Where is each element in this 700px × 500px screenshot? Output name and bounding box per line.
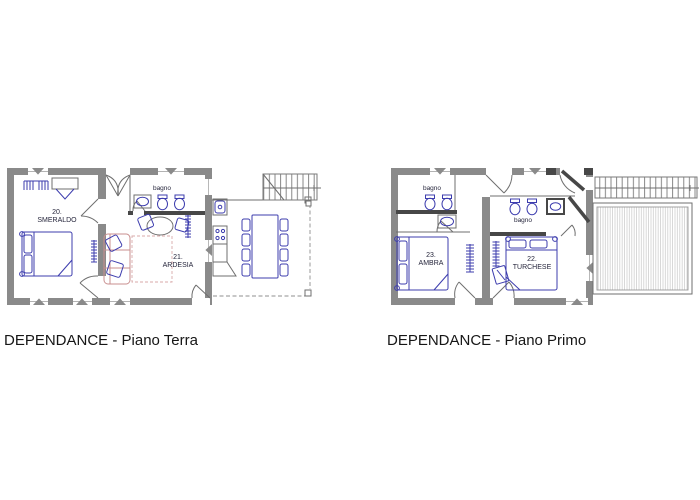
stove-icon [213,226,227,244]
kitchen-unit [213,199,236,276]
sofa-icon [104,234,130,284]
floorplan-drawing: 20. SMERALDO 21. ARDESIA bagno [0,0,700,500]
bathroom [134,195,185,210]
radiator-icon [24,181,48,190]
toilet-icon [425,195,435,210]
room-number: 23. [426,252,436,259]
dining-table-icon [252,215,278,278]
sink-icon [438,215,456,228]
counter-icon [213,244,236,276]
chair-icon [137,214,154,231]
room-name: SMERALDO [37,217,77,224]
terrace-hatch [597,207,688,290]
sofa-bed-outline-icon [132,236,172,282]
shower-icon [547,199,564,214]
toilet-icon [510,199,520,215]
radiator-icon [466,244,474,272]
floor-plan-piano-primo: 23. AMBRA 22. TURCHESE bagno bagno [391,168,699,305]
bathroom-2 [510,199,564,215]
stairs-icon [586,177,699,200]
bathroom-label: bagno [514,217,532,224]
dining-chairs [242,219,288,276]
room-name: TURCHESE [513,264,552,271]
kitchen-sink-icon [213,199,227,215]
room-number: 22. [527,256,537,263]
stairs-icon [263,174,321,206]
table-icon [147,217,173,235]
radiator-icon [493,241,500,267]
bathroom-label: bagno [153,185,171,192]
floor-plan-piano-terra: 20. SMERALDO 21. ARDESIA bagno [7,168,321,305]
caption-piano-terra: DEPENDANCE - Piano Terra [4,332,199,349]
caption-piano-primo: DEPENDANCE - Piano Primo [387,332,586,349]
bidet-icon [442,195,452,210]
room-number: 20. [52,209,62,216]
toilet-icon [158,195,168,210]
sink-icon [134,195,151,208]
radiator-icon [185,215,191,238]
room-smeraldo [20,178,97,276]
bed-icon [20,232,72,277]
room-ardesia [104,214,191,284]
room-name: AMBRA [419,260,444,267]
bathroom-label: bagno [423,185,441,192]
interior-walls [396,175,589,305]
radiator-icon [91,240,97,262]
room-number: 21. [173,254,183,261]
bidet-icon [527,199,537,215]
wardrobe-icon [52,178,78,199]
bidet-icon [175,195,185,210]
room-name: ARDESIA [163,262,194,269]
terrace [593,203,692,294]
